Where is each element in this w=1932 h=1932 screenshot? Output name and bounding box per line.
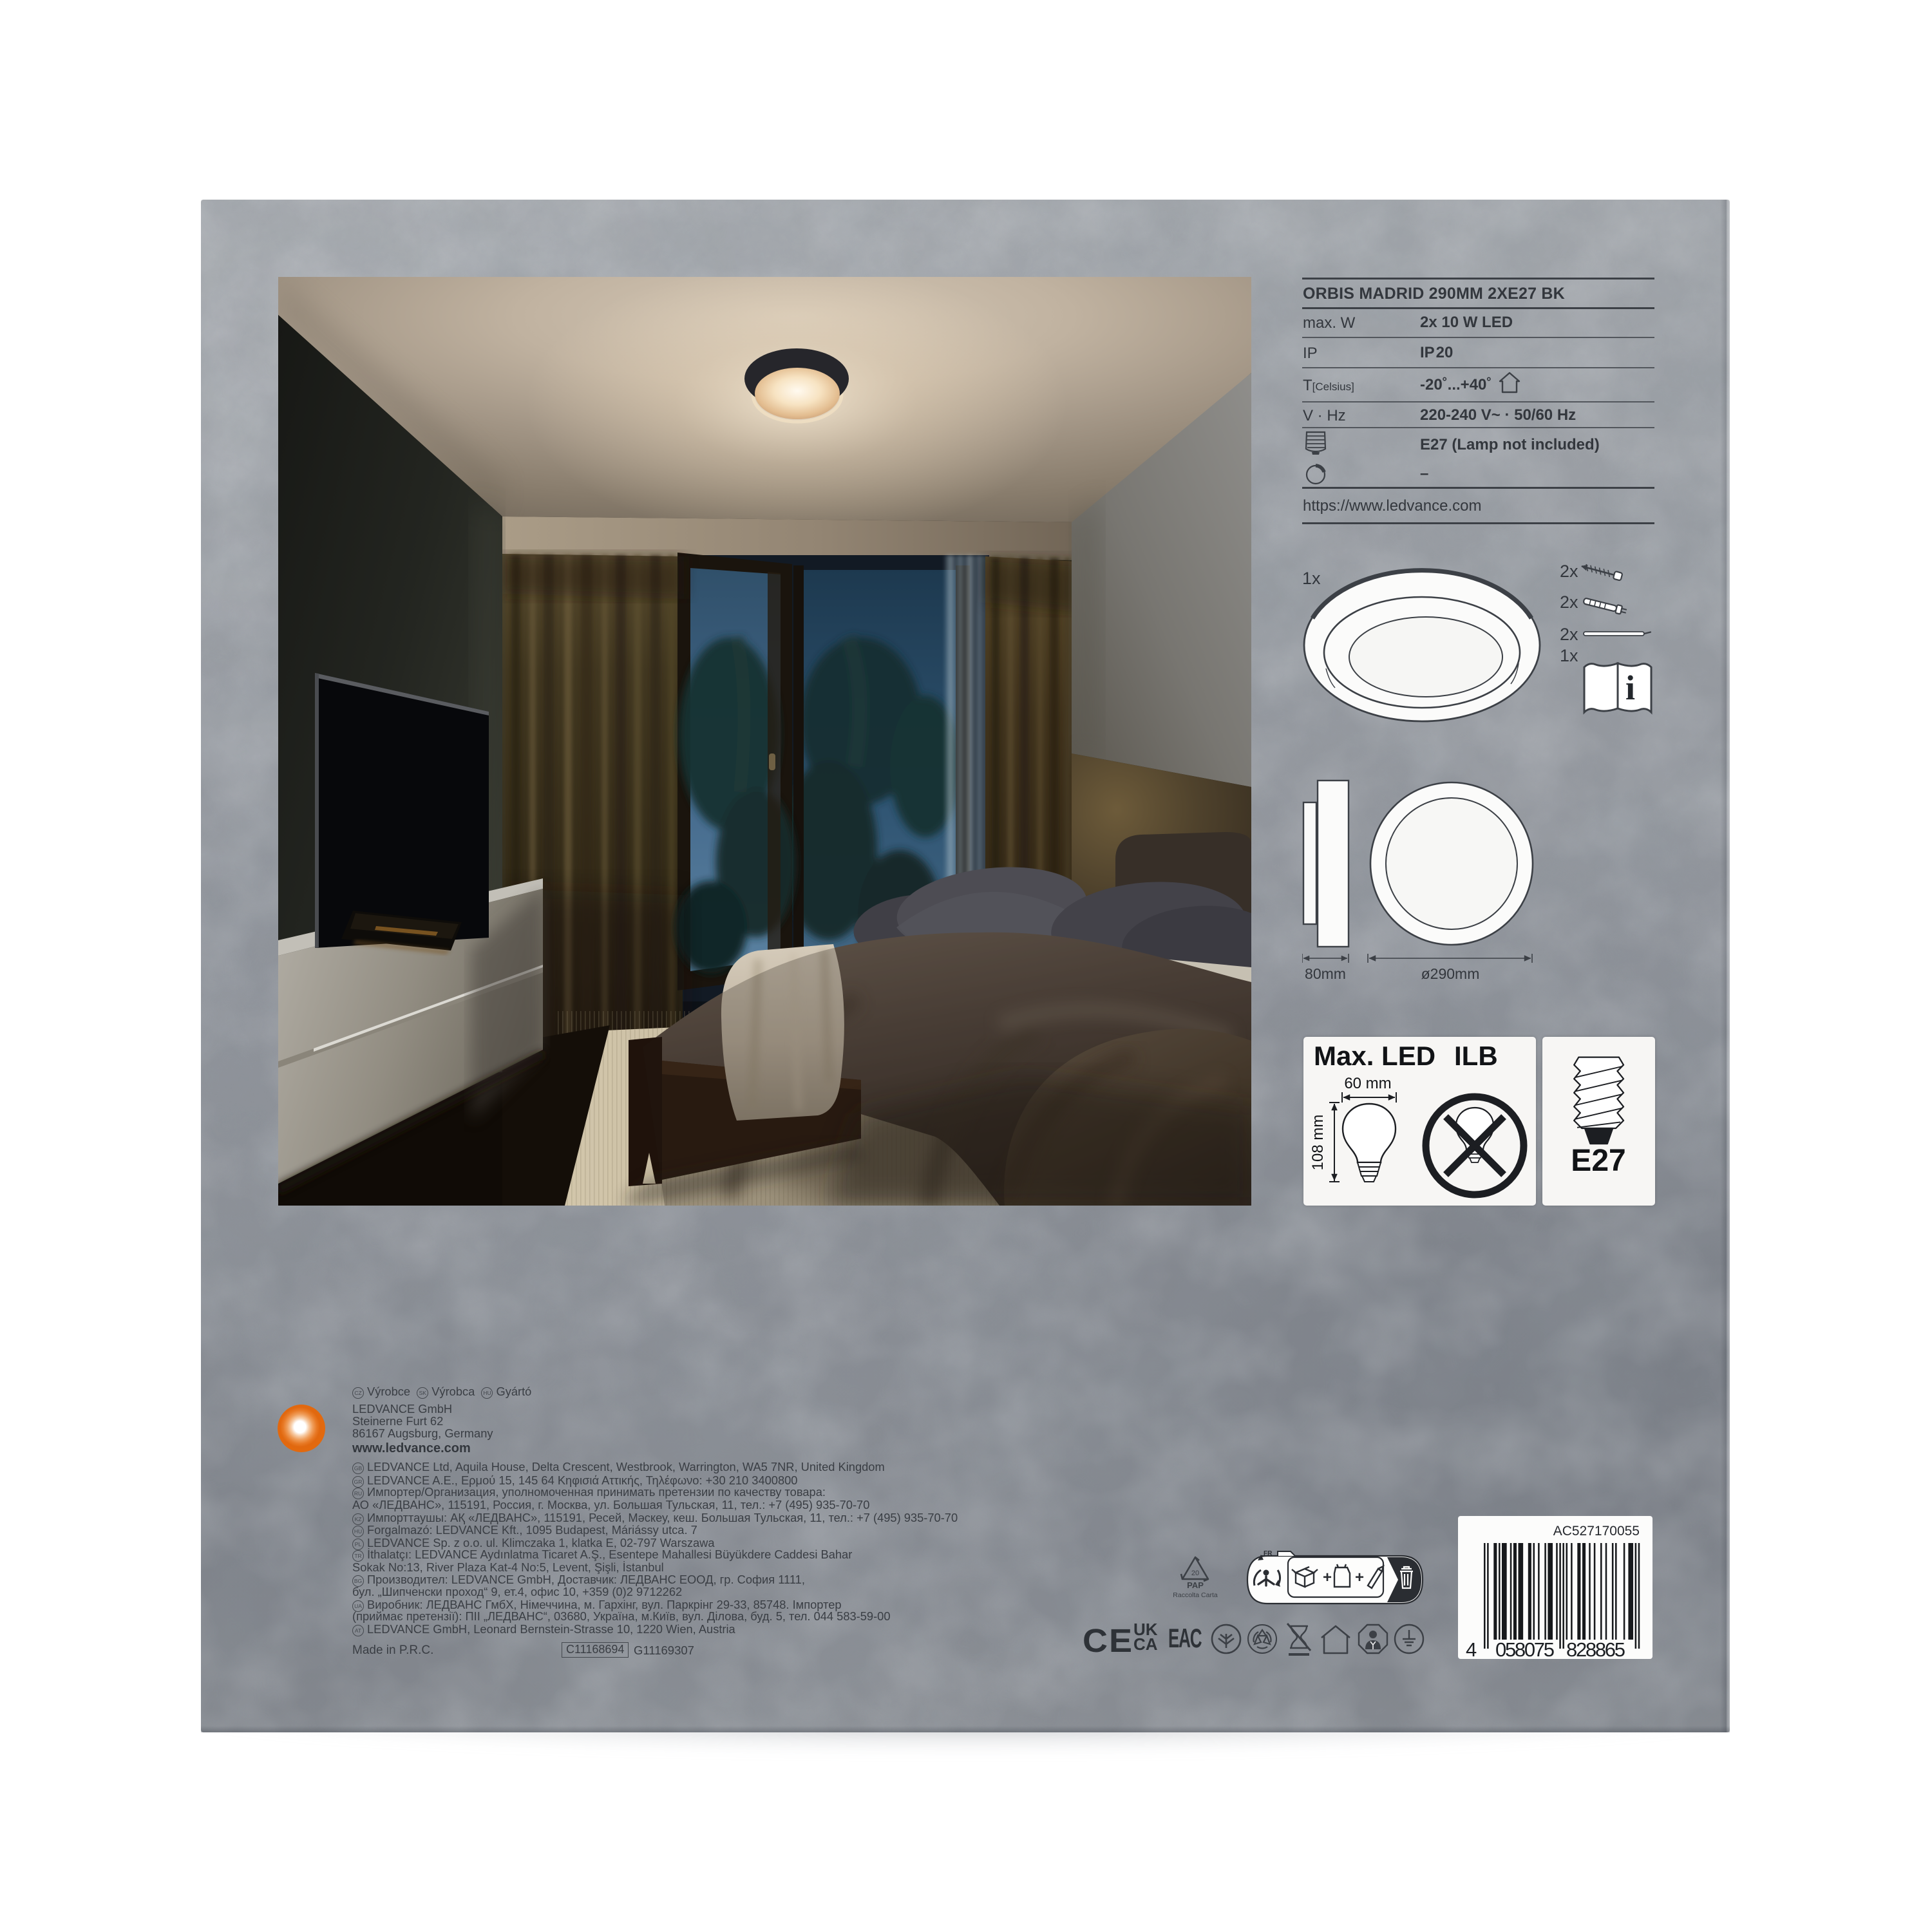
svg-text:828865: 828865	[1566, 1638, 1625, 1659]
svg-text:2x: 2x	[1560, 592, 1578, 612]
svg-text:+: +	[1323, 1569, 1332, 1586]
svg-text:ILB: ILB	[1454, 1041, 1498, 1071]
svg-text:058075: 058075	[1495, 1638, 1555, 1659]
svg-text:2x: 2x	[1560, 625, 1578, 644]
svg-text:108 mm: 108 mm	[1309, 1115, 1327, 1171]
svg-text:Max. LED: Max. LED	[1314, 1041, 1435, 1071]
svg-text:1x: 1x	[1560, 646, 1578, 665]
svg-text:20: 20	[1191, 1569, 1199, 1577]
svg-text:80mm: 80mm	[1305, 965, 1346, 982]
svg-text:E27: E27	[1571, 1144, 1625, 1178]
svg-text:ø290mm: ø290mm	[1421, 965, 1480, 982]
svg-text:PAP: PAP	[1187, 1580, 1204, 1590]
svg-text:60 mm: 60 mm	[1344, 1075, 1391, 1092]
svg-text:4: 4	[1466, 1638, 1477, 1659]
svg-text:1x: 1x	[1302, 569, 1321, 588]
svg-text:AC527170055: AC527170055	[1553, 1524, 1640, 1539]
svg-text:i: i	[1625, 668, 1635, 707]
svg-text:Raccolta Carta: Raccolta Carta	[1173, 1591, 1218, 1599]
svg-text:2x: 2x	[1560, 562, 1578, 581]
svg-text:FR: FR	[1264, 1550, 1273, 1557]
svg-text:+: +	[1355, 1569, 1364, 1586]
